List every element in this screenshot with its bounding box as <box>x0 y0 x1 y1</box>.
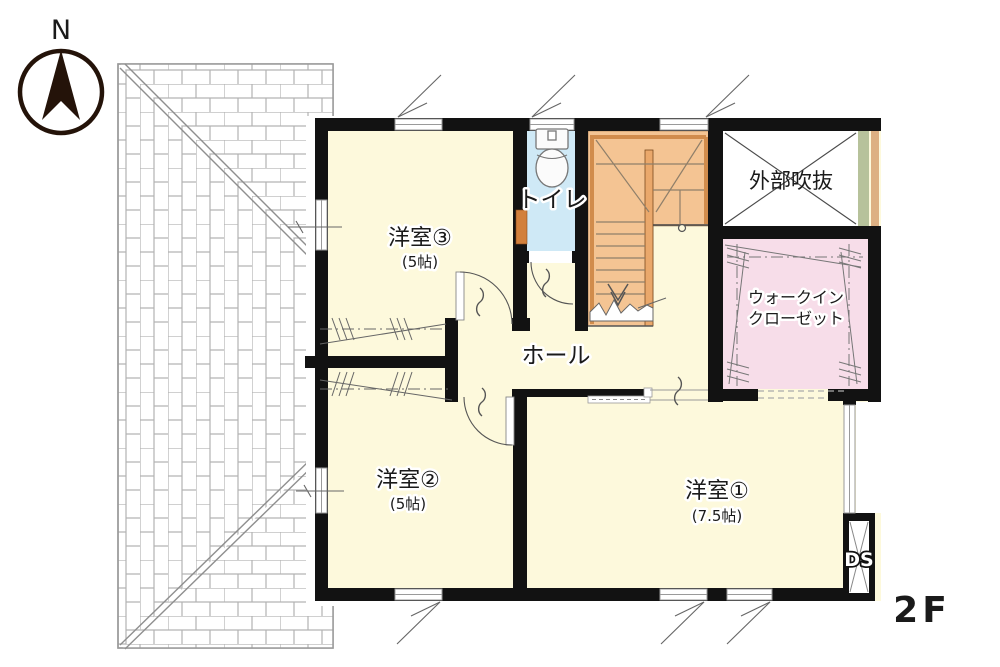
toilet-label: トイレ <box>518 187 587 213</box>
wall-segment <box>305 356 458 368</box>
roof-hatch <box>118 64 333 649</box>
void-screen-green <box>858 131 869 226</box>
wall-segment <box>868 226 881 402</box>
room-western2-label: 洋室② <box>376 468 440 493</box>
duct-chase <box>516 210 527 244</box>
toilet-icon <box>536 129 568 187</box>
stair-center-post <box>645 150 653 326</box>
sliding-door-jamb <box>644 388 652 397</box>
room-western1-label: 洋室① <box>685 479 749 504</box>
sliding-door <box>588 396 650 403</box>
door-leaf <box>456 272 464 320</box>
wall-segment <box>575 131 588 331</box>
north-label: N <box>51 15 71 46</box>
room-western2-size: (5帖) <box>390 495 426 513</box>
hall-label: ホール <box>522 343 591 369</box>
room-western1-size: (7.5帖) <box>692 507 743 525</box>
handrail-end-circle <box>679 225 686 232</box>
room-western3-label: 洋室③ <box>388 226 452 251</box>
floor-plan-canvas: N 洋室③ (5帖) トイレ 外部吹抜 ウォークイン クローゼット ホール 洋室… <box>0 0 1000 667</box>
wall-segment <box>708 226 881 239</box>
floor-label: 2F <box>893 590 951 631</box>
void-screen-tan <box>871 131 879 226</box>
wall-segment <box>843 389 856 405</box>
door-gap <box>529 251 572 263</box>
door-leaf <box>506 397 514 445</box>
wall-segment <box>576 313 588 328</box>
exterior-notch <box>856 402 888 513</box>
room-western3-size: (5帖) <box>402 253 438 271</box>
door-gap <box>458 318 512 331</box>
wall-segment <box>708 131 723 402</box>
north-arrow-icon <box>42 50 80 120</box>
door-gap <box>462 389 512 401</box>
wall-segment <box>513 389 527 601</box>
exterior-void-label: 外部吹抜 <box>749 169 833 193</box>
compass: N <box>20 15 102 133</box>
wic-label-line2: クローゼット <box>748 309 844 328</box>
floor-plan-page: N 洋室③ (5帖) トイレ 外部吹抜 ウォークイン クローゼット ホール 洋室… <box>0 0 1000 667</box>
duct-space-label: DS <box>844 549 873 571</box>
wic-label-line1: ウォークイン <box>748 288 844 307</box>
wall-segment <box>708 389 760 401</box>
